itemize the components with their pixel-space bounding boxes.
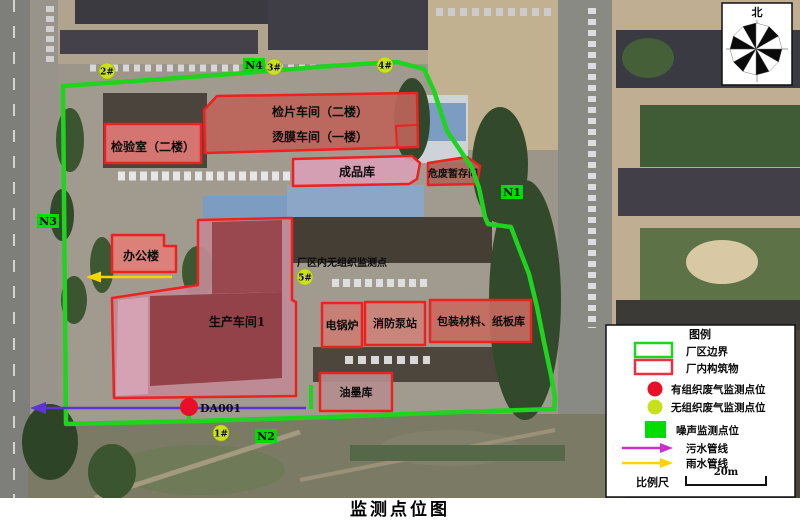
building-production-roof-pink [116,297,148,396]
building-label: 成品库 [339,164,375,179]
blue-building-center [203,196,290,218]
legend-item-label: 噪声监测点位 [676,424,739,437]
legend-scale-label: 比例尺 [636,475,669,489]
building-label: 包装材料、纸板库 [436,314,525,328]
field-hedge [350,445,565,461]
stack-point-label: DA001 [200,402,241,415]
east-road-asphalt [558,0,612,435]
compass-north-label: 北 [752,5,763,19]
dark-building-middle [293,217,492,263]
building-label: 检验室（二楼） [111,139,195,154]
building-label: 消防泵站 [373,316,417,330]
noise-point-label: N1 [503,186,521,199]
east-tree-band [640,105,800,167]
building-label: 办公楼 [123,248,159,263]
tree-southwest-2 [88,444,136,498]
fugitive-point-label: 5# [298,274,312,284]
noise-point-label: N2 [257,430,275,443]
legend-item-label: 厂内构筑物 [686,362,739,375]
legend-item-label: 污水管线 [686,442,728,455]
east-sand-patch [686,240,758,284]
east-roof-2 [618,168,800,216]
noise-point-label: N3 [39,215,57,228]
legend-item-label: 厂区边界 [686,345,728,358]
fugitive-point-label: 1# [214,430,228,440]
tree-southwest-1 [22,404,78,480]
legend-organized-dot-icon [648,382,663,397]
legend-boundary-swatch-icon [635,343,672,357]
tree-office-west [90,237,114,293]
fugitive-point-label: 4# [378,62,392,72]
building-label: 电锅炉 [326,318,359,332]
building-label: 生产车间1 [209,314,265,329]
legend-noise-square-icon [645,421,666,438]
legend-item-label: 无组织废气监测点位 [670,401,766,414]
noise-point-label: N4 [245,59,263,72]
field-patch-1 [115,445,285,495]
tree-west-1 [56,108,84,172]
legend-structure-swatch-icon [635,360,672,374]
legend-fugitive-dot-icon [648,400,663,415]
background-residential-north [30,0,440,68]
building-label: 烫膜车间（一楼） [272,129,368,144]
compass: 北 [722,3,792,85]
blue-building-ne [428,103,466,141]
west-road-asphalt [0,0,30,498]
fugitive-point-label: 3# [267,64,281,74]
figure-title: 监测点位图 [0,498,800,525]
monitoring-point-map-figure: 检验室（二楼） 检片车间（二楼） 烫膜车间（一楼） 成品库 危废暂存间 办公楼 … [0,0,800,525]
north-roof-3 [268,0,428,50]
legend-title: 图例 [689,327,711,341]
stack-point-marker [180,398,198,416]
building-label: 检片车间（二楼） [272,104,368,119]
north-roof-1 [75,0,270,24]
fugitive-point-label: 2# [100,68,114,78]
building-production-roof-dark [150,292,282,386]
tree-east-res [622,38,674,78]
blue-building-warehouse [287,185,424,218]
building-production-roof-wing [212,220,282,294]
legend: 图例 厂区边界 厂内构筑物 有组织废气监测点位 无组织废气监测点位 噪声监测点位… [606,325,795,497]
inplant-note-label: 厂区内无组织监测点 [297,256,387,269]
building-film-workshop [204,93,418,153]
north-roof-2 [60,30,258,54]
legend-scale-value: 20m [714,467,739,478]
site-map: 检验室（二楼） 检片车间（二楼） 烫膜车间（一楼） 成品库 危废暂存间 办公楼 … [0,0,800,498]
building-label: 油墨库 [340,385,373,399]
legend-item-label: 有组织废气监测点位 [671,383,766,396]
